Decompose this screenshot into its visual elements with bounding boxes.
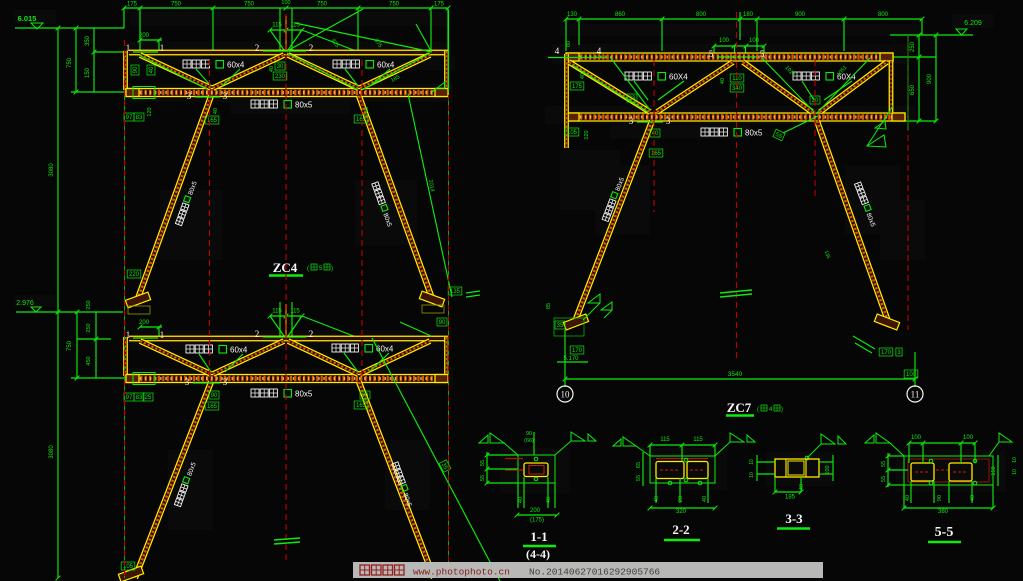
svg-text:40: 40: [546, 497, 552, 503]
svg-text:115: 115: [272, 309, 282, 315]
svg-text:90: 90: [211, 393, 218, 399]
svg-text:83: 83: [136, 395, 143, 401]
svg-text:1: 1: [126, 43, 131, 53]
svg-text:165: 165: [356, 403, 367, 409]
svg-text:40: 40: [702, 496, 708, 502]
svg-text:1: 1: [160, 330, 165, 340]
svg-text:900: 900: [927, 73, 933, 84]
svg-text:35: 35: [557, 323, 564, 329]
svg-text:1: 1: [160, 43, 165, 53]
svg-text:90: 90: [439, 320, 446, 326]
svg-text:6.209: 6.209: [964, 20, 982, 27]
svg-text:80: 80: [566, 41, 572, 47]
svg-text:60x4: 60x4: [377, 61, 395, 70]
svg-text:110: 110: [732, 76, 742, 82]
svg-text:250: 250: [86, 300, 92, 309]
svg-text:150: 150: [85, 67, 91, 78]
svg-text:100: 100: [749, 38, 760, 44]
svg-text:10: 10: [1012, 469, 1018, 475]
svg-text:3: 3: [666, 116, 671, 126]
svg-text:100: 100: [825, 465, 831, 474]
svg-text:185: 185: [785, 495, 796, 501]
svg-text:750: 750: [317, 2, 328, 8]
svg-text:4: 4: [597, 46, 602, 56]
svg-text:200: 200: [139, 33, 150, 39]
svg-text:3540: 3540: [728, 371, 743, 378]
svg-text:165: 165: [356, 117, 367, 123]
svg-text:55: 55: [636, 475, 642, 481]
svg-text:750: 750: [171, 2, 182, 8]
svg-text:350: 350: [85, 35, 91, 46]
svg-text:2: 2: [309, 329, 314, 339]
svg-text:3: 3: [223, 91, 228, 101]
svg-text:750: 750: [67, 340, 73, 351]
svg-text:3: 3: [185, 377, 190, 387]
svg-text:5.170: 5.170: [563, 356, 579, 362]
svg-text:40: 40: [905, 495, 911, 501]
svg-text:5: 5: [709, 49, 714, 59]
svg-text:120: 120: [147, 107, 153, 116]
svg-text:60X4: 60X4: [669, 73, 688, 82]
svg-text:60x4: 60x4: [376, 345, 394, 354]
svg-text:10: 10: [749, 459, 755, 465]
svg-text:860: 860: [615, 12, 626, 18]
svg-text:100: 100: [719, 38, 730, 44]
svg-text:750: 750: [389, 2, 400, 8]
svg-text:320: 320: [676, 509, 687, 515]
svg-text:3: 3: [187, 91, 192, 101]
svg-text:175: 175: [127, 2, 138, 8]
svg-text:5: 5: [760, 49, 765, 59]
svg-text:90: 90: [133, 66, 139, 73]
svg-text:ZC4: ZC4: [273, 260, 298, 275]
svg-text:80x5: 80x5: [745, 129, 763, 138]
svg-text:40: 40: [269, 66, 275, 72]
svg-text:No.20140627016292905766: No.20140627016292905766: [529, 567, 660, 578]
svg-text:180: 180: [743, 12, 754, 18]
svg-text:2: 2: [255, 329, 260, 339]
svg-text:40: 40: [149, 66, 155, 73]
svg-text:135: 135: [450, 289, 461, 295]
svg-text:2: 2: [255, 43, 260, 53]
svg-text:750: 750: [244, 2, 255, 8]
svg-text:23: 23: [629, 96, 636, 102]
svg-text:(66): (66): [524, 438, 534, 444]
svg-text:(: (: [307, 266, 309, 272]
svg-text:40: 40: [364, 107, 370, 113]
svg-text:115: 115: [272, 23, 282, 29]
svg-text:20: 20: [678, 496, 684, 502]
svg-text:ZC7: ZC7: [727, 400, 752, 415]
svg-text:): ): [781, 407, 783, 413]
svg-text:80x5: 80x5: [295, 101, 313, 110]
svg-text:55: 55: [881, 476, 887, 482]
svg-text:1-1: 1-1: [530, 529, 547, 544]
svg-text:105: 105: [567, 130, 578, 136]
svg-text:250: 250: [86, 323, 92, 332]
svg-text:40: 40: [720, 78, 726, 84]
svg-text:55: 55: [480, 460, 486, 466]
svg-text:800: 800: [878, 12, 889, 18]
svg-text:175: 175: [434, 2, 445, 8]
svg-text:(175): (175): [530, 518, 544, 524]
svg-text:55: 55: [881, 461, 887, 467]
svg-text:40: 40: [580, 73, 586, 79]
svg-text:): ): [331, 266, 333, 272]
svg-text:450: 450: [86, 356, 92, 365]
svg-text:97: 97: [126, 115, 133, 121]
svg-text:3080: 3080: [49, 445, 55, 459]
svg-text:100: 100: [281, 0, 290, 6]
svg-text:80x5: 80x5: [295, 390, 313, 399]
svg-text:4: 4: [555, 46, 560, 56]
svg-text:175: 175: [572, 84, 583, 90]
svg-text:230: 230: [275, 74, 286, 80]
svg-text:200: 200: [139, 320, 150, 326]
svg-text:(4-4): (4-4): [526, 547, 550, 561]
svg-text:40: 40: [518, 497, 524, 503]
svg-text:10: 10: [1012, 457, 1018, 463]
svg-text:40: 40: [654, 496, 660, 502]
svg-text:5-5: 5-5: [935, 525, 954, 540]
svg-text:1: 1: [126, 330, 131, 340]
svg-text:130: 130: [567, 12, 578, 18]
svg-text:800: 800: [696, 12, 707, 18]
svg-text:40: 40: [652, 131, 659, 137]
svg-text:90: 90: [362, 393, 369, 399]
svg-text:900: 900: [795, 12, 806, 18]
svg-text:250: 250: [910, 41, 916, 52]
svg-text:11: 11: [911, 390, 920, 400]
svg-text:165: 165: [207, 118, 218, 124]
svg-text:www.photophoto.cn: www.photophoto.cn: [413, 567, 510, 578]
svg-text:170: 170: [572, 348, 583, 354]
svg-text:60x4: 60x4: [227, 61, 245, 70]
svg-text:380: 380: [938, 509, 949, 515]
svg-text:3: 3: [223, 377, 228, 387]
svg-text:165: 165: [651, 151, 662, 157]
svg-text:40: 40: [970, 495, 976, 501]
svg-text:83: 83: [136, 115, 143, 121]
svg-text:55: 55: [480, 475, 486, 481]
svg-text:115: 115: [660, 437, 670, 443]
svg-text:2: 2: [309, 43, 314, 53]
svg-text:90: 90: [937, 495, 943, 501]
svg-text:2-2: 2-2: [672, 522, 689, 537]
svg-text:25: 25: [145, 395, 152, 401]
svg-text:(: (: [757, 407, 759, 413]
svg-text:85: 85: [546, 303, 552, 309]
svg-text:120: 120: [584, 130, 590, 139]
svg-text:3-3: 3-3: [785, 511, 803, 526]
svg-text:200: 200: [530, 508, 541, 514]
svg-text:750: 750: [67, 57, 73, 68]
svg-text:97: 97: [126, 395, 133, 401]
svg-text:6.015: 6.015: [18, 14, 37, 23]
svg-text:10: 10: [749, 472, 755, 478]
svg-text:170: 170: [881, 350, 892, 356]
svg-text:10: 10: [561, 390, 571, 400]
svg-text:220: 220: [129, 272, 140, 278]
svg-text:2.976: 2.976: [16, 300, 34, 307]
svg-text:650: 650: [910, 84, 916, 95]
svg-text:30: 30: [277, 64, 284, 70]
svg-text:3080: 3080: [49, 163, 55, 177]
svg-text:3: 3: [629, 116, 634, 126]
svg-text:165: 165: [207, 404, 218, 410]
svg-text:150: 150: [991, 466, 997, 475]
svg-text:340: 340: [732, 86, 743, 92]
svg-text:115: 115: [693, 437, 703, 443]
svg-text:60x4: 60x4: [230, 346, 248, 355]
svg-text:100: 100: [911, 435, 922, 441]
svg-text:40: 40: [213, 108, 219, 114]
svg-text:65: 65: [636, 462, 642, 468]
svg-text:90: 90: [526, 431, 532, 437]
svg-text:100: 100: [963, 435, 974, 441]
svg-text:40: 40: [799, 484, 805, 490]
